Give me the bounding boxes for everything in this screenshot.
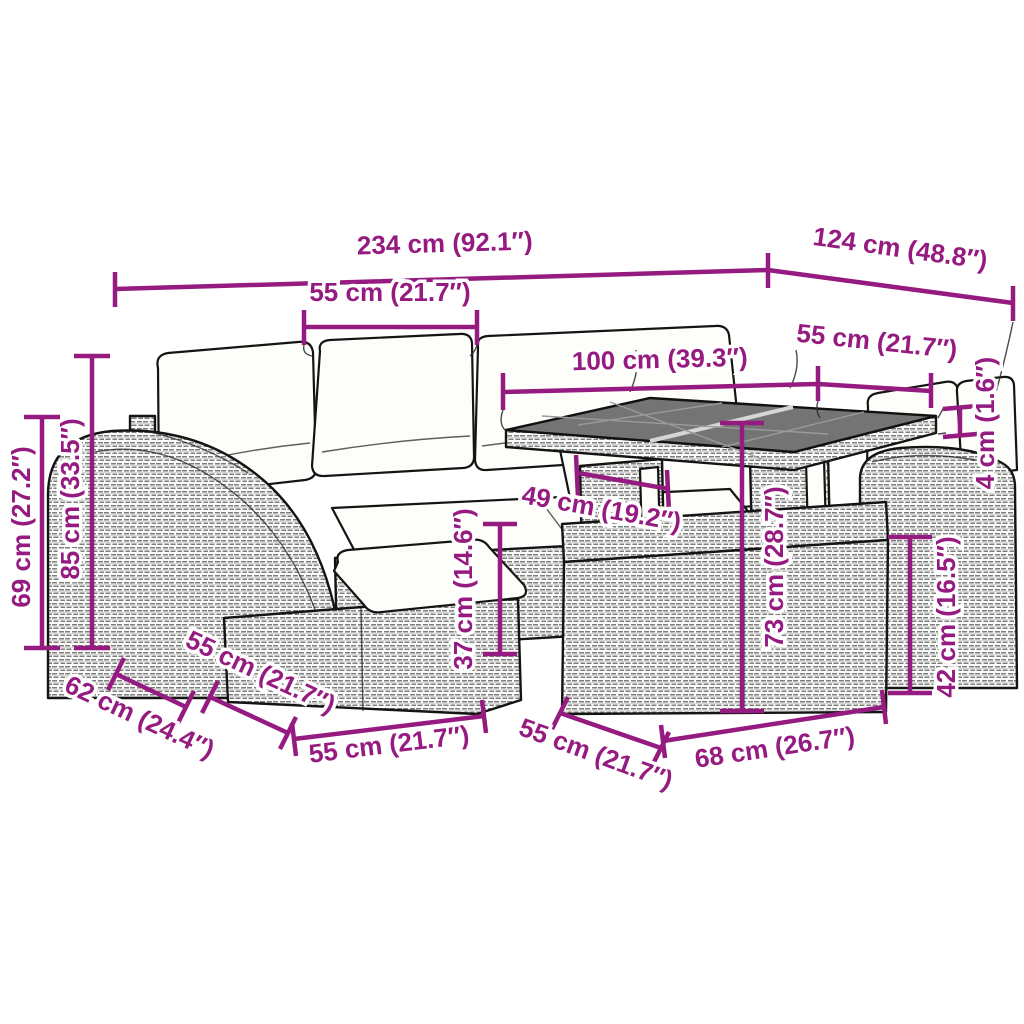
dim-label-seat-width: 55 cm (21.7″) xyxy=(309,277,470,307)
dimension-diagram: 234 cm (92.1″) 124 cm (48.8″) 55 cm (21.… xyxy=(0,0,1024,1024)
back-cushion-middle xyxy=(312,334,474,476)
dim-label-tabletop-thickness: 4 cm (1.6″) xyxy=(970,357,1000,489)
dim-label-storage-box-width: 68 cm (26.7″) xyxy=(693,720,857,774)
diagram-canvas: 234 cm (92.1″) 124 cm (48.8″) 55 cm (21.… xyxy=(0,0,1024,1024)
dim-label-storage-box-height: 42 cm (16.5″) xyxy=(931,536,961,697)
dim-label-armrest-height: 69 cm (27.2″) xyxy=(6,446,36,607)
dim-label-seat-height: 37 cm (14.6″) xyxy=(448,508,478,669)
dim-label-total-depth: 124 cm (48.8″) xyxy=(811,221,989,275)
dim-label-table-length: 100 cm (39.3″) xyxy=(572,342,749,377)
storage-box-front xyxy=(562,540,888,714)
dim-label-total-width: 234 cm (92.1″) xyxy=(356,226,533,261)
dim-line-total-depth xyxy=(768,270,1013,321)
dim-label-backrest-height: 85 cm (33.5″) xyxy=(55,418,85,579)
dim-label-table-depth: 55 cm (21.7″) xyxy=(795,318,959,365)
dim-label-table-height: 73 cm (28.7″) xyxy=(759,486,789,647)
